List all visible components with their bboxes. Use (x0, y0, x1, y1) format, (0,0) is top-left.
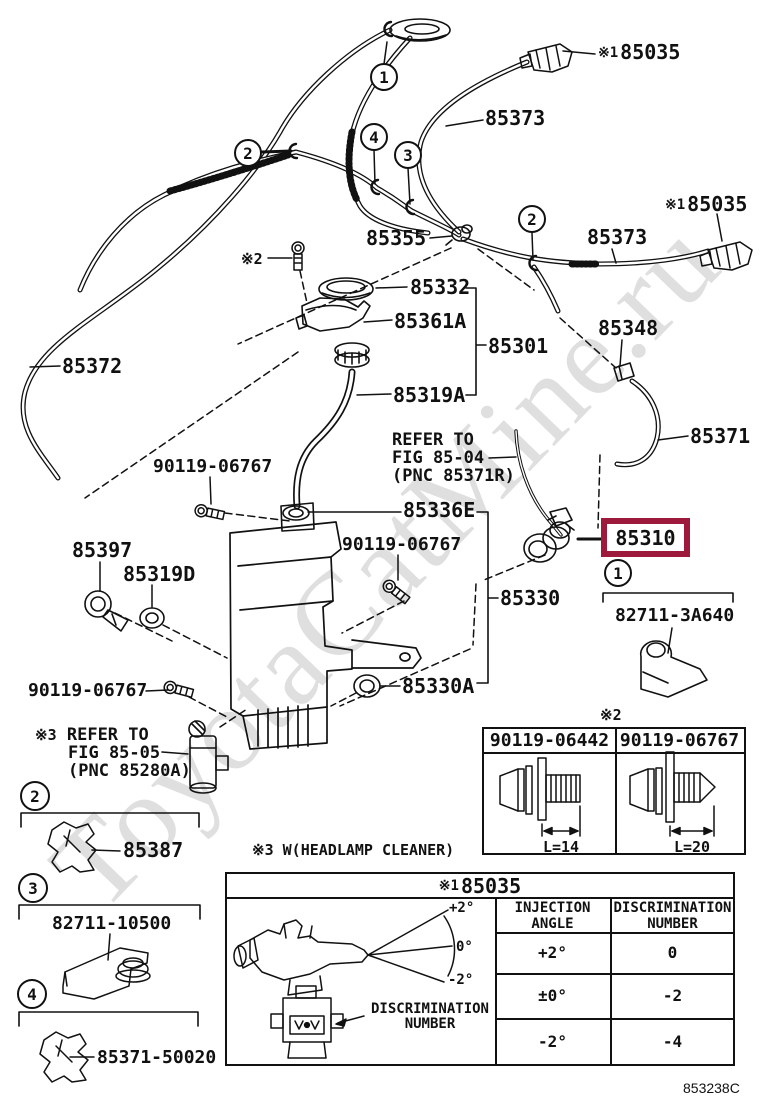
part-82711-10500 (63, 948, 150, 999)
callout-2-mid: 2 (527, 210, 537, 229)
note-star1: ※1 (665, 197, 685, 213)
fan-label-zero: 0° (456, 939, 473, 955)
callout-4-top: 4 (369, 128, 379, 147)
callout-circles (18, 64, 631, 1008)
note-star1: ※1 (598, 45, 618, 61)
label-85387: 85387 (123, 840, 183, 860)
callout-2-top: 2 (243, 144, 253, 163)
label-85372: 85372 (62, 356, 122, 376)
angle-row-1: +2° (495, 932, 610, 973)
clip-85387 (48, 822, 96, 872)
label-85332: 85332 (410, 277, 470, 297)
label-85348: 85348 (598, 318, 658, 338)
note-star3: ※3 (35, 726, 57, 744)
hose-stub (534, 267, 558, 311)
note-star2-bolt: ※2 (241, 252, 263, 267)
angle-row-3: -2° (495, 1018, 610, 1064)
washer-nozzle-top (390, 19, 450, 41)
label-85319d: 85319D (123, 564, 195, 584)
label-85361a: 85361A (394, 311, 466, 331)
dashed-lines (85, 248, 616, 727)
number-row-1: 0 (610, 932, 735, 973)
grommet-85319d (140, 608, 164, 628)
label-90119-06767-top: 90119-06767 (153, 458, 272, 476)
part-82711-3a640 (641, 641, 707, 697)
label-90119-06767-right: 90119-06767 (342, 536, 461, 554)
nozzle-85035-right (700, 242, 752, 270)
bolt-table-divider (615, 729, 617, 853)
callout-3-group: 3 (28, 879, 38, 898)
callout-4-group: 4 (27, 985, 37, 1004)
label-82711-3a640: 82711-3A640 (615, 607, 734, 625)
label-82711-10500: 82711-10500 (52, 915, 171, 933)
hose-85371 (617, 381, 658, 465)
nozzle-spec-table: ※185035 INJECTIONANGLE DISCRIMINATIONNUM… (225, 872, 735, 1066)
label-85301: 85301 (488, 336, 548, 356)
label-85371: 85371 (690, 426, 750, 446)
hose-fig8504 (516, 431, 561, 535)
dim-l20: L=20 (662, 838, 722, 856)
label-85336e: 85336E (403, 500, 475, 520)
label-85035-top: ※185035 (598, 42, 680, 62)
label-85355: 85355 (366, 228, 426, 248)
inlet-rings (335, 343, 369, 367)
hose-85373-top (419, 62, 527, 232)
label-85319a: 85319A (393, 385, 465, 405)
nozzle-85035-top (520, 44, 572, 72)
bolt-col2-header: 90119-06767 (615, 729, 744, 754)
label-85330: 85330 (500, 588, 560, 608)
label-85373-mid: 85373 (587, 227, 647, 247)
parts-diagram-page: ToyotaCatMine.ru (0, 0, 760, 1112)
reservoir-tank (230, 522, 421, 749)
bolt-spec-table: 90119-06442 90119-06767 (482, 727, 746, 855)
callout-2-group: 2 (30, 787, 40, 806)
bolt-90119-top (194, 504, 225, 522)
bracket-85361a (296, 298, 370, 331)
grommet-85330a (354, 675, 380, 697)
hose-85373-mid (463, 239, 708, 264)
dim-l14: L=14 (531, 838, 591, 856)
bolt-col1-header: 90119-06442 (484, 729, 615, 754)
label-85397: 85397 (72, 540, 132, 560)
number-row-2: -2 (610, 973, 735, 1018)
fan-label-plus2: +2° (449, 900, 474, 916)
connector-85348 (614, 363, 634, 381)
pump-85310 (524, 508, 574, 562)
figure-code: 853238C (683, 1080, 740, 1096)
part-85397 (85, 591, 128, 631)
pump-headlamp-cleaner (189, 721, 228, 793)
highlighted-part-85310[interactable]: 85310 (601, 518, 690, 557)
angle-row-2: ±0° (495, 973, 610, 1018)
label-85035-mid: ※185035 (665, 194, 747, 214)
bolt-table-note: ※2 (600, 708, 622, 723)
cap-85332 (319, 278, 373, 300)
discrimination-number-callout: DISCRIMINATIONNUMBER (366, 1002, 494, 1032)
label-90119-06767-left: 90119-06767 (28, 682, 147, 700)
refer-fig-85-05: ※3 REFER TO FIG 85-05 (PNC 85280A) (35, 726, 191, 780)
callout-1-top: 1 (379, 68, 389, 87)
label-85330a: 85330A (402, 676, 474, 696)
label-85373-top: 85373 (485, 108, 545, 128)
bolt-90119-right (381, 578, 411, 605)
number-row-3: -4 (610, 1018, 735, 1064)
label-85371-50020: 85371-50020 (97, 1049, 216, 1067)
fan-label-minus2: -2° (448, 972, 473, 988)
bolt-note2 (292, 242, 304, 270)
nozzle-table-title: ※185035 (227, 874, 733, 899)
bolt-90119-left (163, 680, 194, 699)
refer-fig-85-04: REFER TO FIG 85-04 (PNC 85371R) (392, 431, 515, 485)
header-discrimination-number: DISCRIMINATIONNUMBER (610, 899, 735, 932)
headlamp-cleaner-note: ※3 W(HEADLAMP CLEANER) (252, 843, 454, 858)
hose-85372 (23, 30, 390, 478)
callout-1-pump: 1 (613, 564, 623, 583)
hose-filler-85319a (297, 372, 352, 506)
callout-3-top: 3 (403, 146, 413, 165)
header-injection-angle: INJECTIONANGLE (495, 899, 610, 932)
